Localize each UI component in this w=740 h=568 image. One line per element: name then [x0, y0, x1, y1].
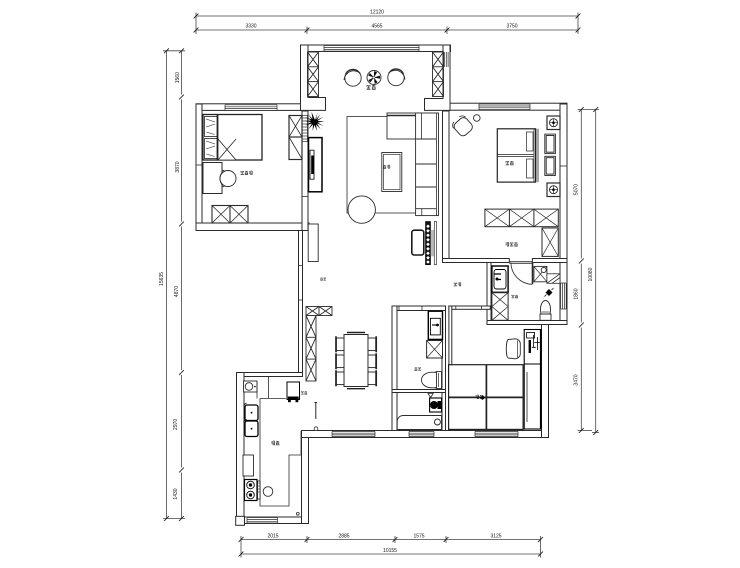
svg-text:2015: 2015 [267, 534, 278, 540]
svg-text:1430: 1430 [173, 488, 179, 499]
svg-text:12120: 12120 [370, 10, 384, 16]
svg-text:1560: 1560 [175, 72, 181, 83]
svg-text:1575: 1575 [413, 534, 424, 540]
svg-text:3470: 3470 [574, 374, 580, 385]
svg-text:10155: 10155 [383, 548, 397, 554]
svg-text:3125: 3125 [490, 534, 501, 540]
svg-text:10080: 10080 [588, 267, 594, 281]
svg-text:1860: 1860 [574, 288, 580, 299]
svg-text:15635: 15635 [159, 272, 165, 286]
svg-text:5070: 5070 [574, 184, 580, 195]
svg-text:3750: 3750 [506, 24, 517, 30]
svg-text:2970: 2970 [173, 419, 179, 430]
svg-text:2885: 2885 [338, 534, 349, 540]
svg-text:3330: 3330 [245, 24, 256, 30]
svg-text:4565: 4565 [371, 24, 382, 30]
svg-text:3870: 3870 [175, 161, 181, 172]
svg-text:4870: 4870 [174, 286, 180, 297]
